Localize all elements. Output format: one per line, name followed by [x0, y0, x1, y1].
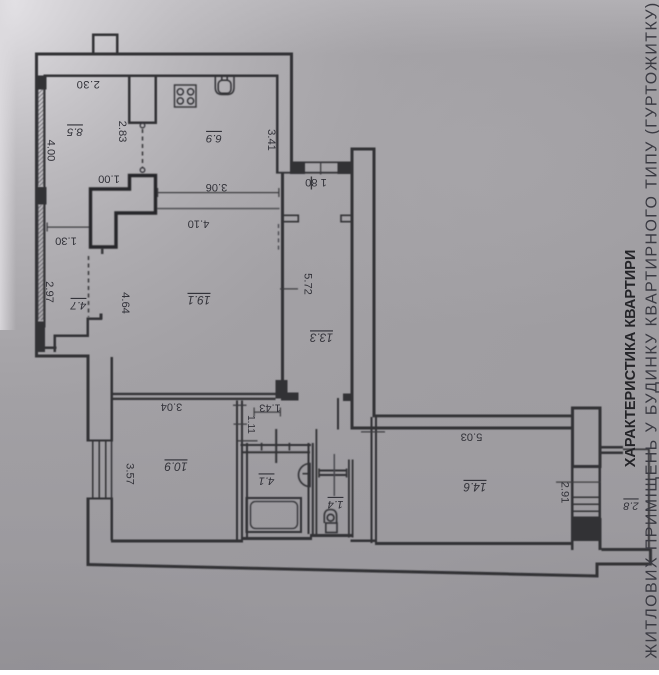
- svg-text:1.43: 1.43: [259, 402, 280, 414]
- svg-text:1 80: 1 80: [305, 176, 327, 188]
- svg-text:3.06: 3.06: [206, 181, 228, 193]
- svg-text:1.4: 1.4: [328, 498, 344, 510]
- svg-text:10.9: 10.9: [164, 460, 187, 474]
- svg-text:3.04: 3.04: [161, 401, 182, 413]
- svg-text:2.30: 2.30: [76, 78, 100, 90]
- svg-text:4.00: 4.00: [45, 140, 57, 162]
- svg-text:3.41: 3.41: [265, 129, 277, 151]
- svg-text:1.00: 1.00: [98, 173, 120, 185]
- svg-text:4.10: 4.10: [188, 218, 210, 230]
- svg-text:1.30: 1.30: [55, 235, 77, 247]
- svg-text:2.97: 2.97: [43, 281, 55, 303]
- svg-text:2.91: 2.91: [559, 482, 571, 503]
- svg-text:2.83: 2.83: [116, 121, 128, 143]
- svg-text:4.7: 4.7: [70, 299, 86, 311]
- svg-text:1.11: 1.11: [245, 415, 256, 434]
- svg-text:2.8: 2.8: [622, 500, 639, 512]
- svg-text:19.1: 19.1: [188, 293, 211, 307]
- svg-text:3.57: 3.57: [124, 463, 136, 485]
- svg-text:ЖИТЛОВИХ ПРИМІЩЕНЬ У БУДИНКУ К: ЖИТЛОВИХ ПРИМІЩЕНЬ У БУДИНКУ КВАРТИРНОГО…: [644, 1, 659, 658]
- svg-text:8.5: 8.5: [66, 126, 82, 138]
- svg-text:4.1: 4.1: [259, 475, 275, 487]
- svg-text:5.72: 5.72: [302, 273, 314, 295]
- svg-text:13.3: 13.3: [310, 331, 333, 345]
- svg-text:4.64: 4.64: [119, 292, 131, 314]
- svg-text:6.9: 6.9: [205, 132, 221, 144]
- svg-text:ХАРАКТЕРИСТИКА КВАРТИРИ: ХАРАКТЕРИСТИКА КВАРТИРИ: [623, 250, 639, 468]
- svg-text:5.03: 5.03: [461, 431, 483, 443]
- svg-text:14.6: 14.6: [463, 480, 486, 494]
